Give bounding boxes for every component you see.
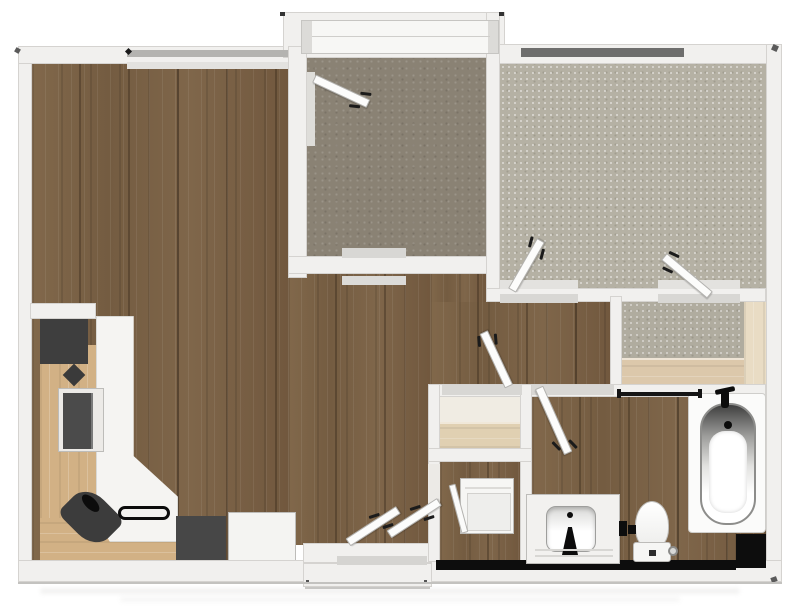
floor-plan: [0, 0, 800, 607]
sink-vanity: [526, 494, 620, 564]
entry-door-header: [337, 556, 427, 565]
den-window-frame-right: [488, 21, 498, 53]
bathtub-drain: [724, 421, 732, 429]
bathroom-corner-ledge: [736, 534, 766, 568]
plan-shadow-2: [120, 597, 680, 602]
toilet-tank: [633, 542, 671, 562]
tall-cabinet: [40, 318, 88, 364]
wall-den-bottom: [288, 256, 500, 274]
plan-shadow-1: [40, 588, 740, 594]
closet-rod-end-left: [617, 389, 621, 398]
den-passthrough-top: [342, 248, 406, 258]
vanity-drawer-line-2: [535, 555, 613, 557]
bathtub-deck: [688, 393, 766, 533]
kitchen-faucet: [79, 492, 102, 515]
vanity-drawer-line-1: [535, 549, 613, 551]
plan-bottom-edge: [18, 582, 782, 584]
closet-rod-end-right: [698, 389, 702, 398]
cooktop: [118, 506, 170, 520]
bathtub-basin: [700, 403, 756, 525]
dining-area-floor: [288, 274, 430, 545]
corner-mark-den-left: [280, 12, 285, 16]
bedroom-window: [521, 48, 684, 57]
bedroom-door-header: [500, 294, 578, 303]
hallway-floor: [430, 302, 612, 386]
living-window-sill: [127, 62, 288, 69]
wall-fixture: [619, 519, 637, 539]
living-window: [127, 50, 288, 57]
wall-bedroom-left: [486, 12, 500, 302]
wall-oven: [63, 393, 93, 449]
closet-rod: [619, 392, 701, 396]
sink-drain: [567, 512, 573, 518]
den-window-mullion: [312, 36, 490, 37]
wall-closet-left: [610, 296, 622, 397]
bathtub-inner: [709, 431, 747, 513]
range: [176, 516, 226, 562]
washer-lid-line: [465, 487, 511, 489]
closet-carpet: [622, 302, 744, 358]
den-passthrough-bottom: [342, 276, 406, 285]
toilet-flush-button: [649, 550, 656, 556]
wall-right: [766, 44, 782, 582]
wall-kitchen-stub: [30, 303, 96, 319]
closet-low-shelf: [622, 358, 744, 386]
washer-panel: [467, 493, 511, 531]
hall-closet-header: [442, 385, 522, 395]
hall-closet-interior: [440, 397, 520, 422]
wall-den-left: [288, 46, 307, 278]
washer-dryer: [460, 478, 514, 534]
nook-floor: [430, 274, 486, 304]
wall-closet-divider: [428, 448, 532, 462]
floor-drain: [668, 546, 678, 556]
den-window-frame-left: [302, 21, 312, 53]
closet-side-shelf: [744, 302, 766, 386]
wall-oven-frame: [58, 388, 104, 452]
hall-closet-shelf: [440, 422, 520, 448]
closet-door-header: [658, 294, 740, 303]
den-window: [301, 20, 499, 54]
corner-mark-den-right: [499, 12, 504, 16]
